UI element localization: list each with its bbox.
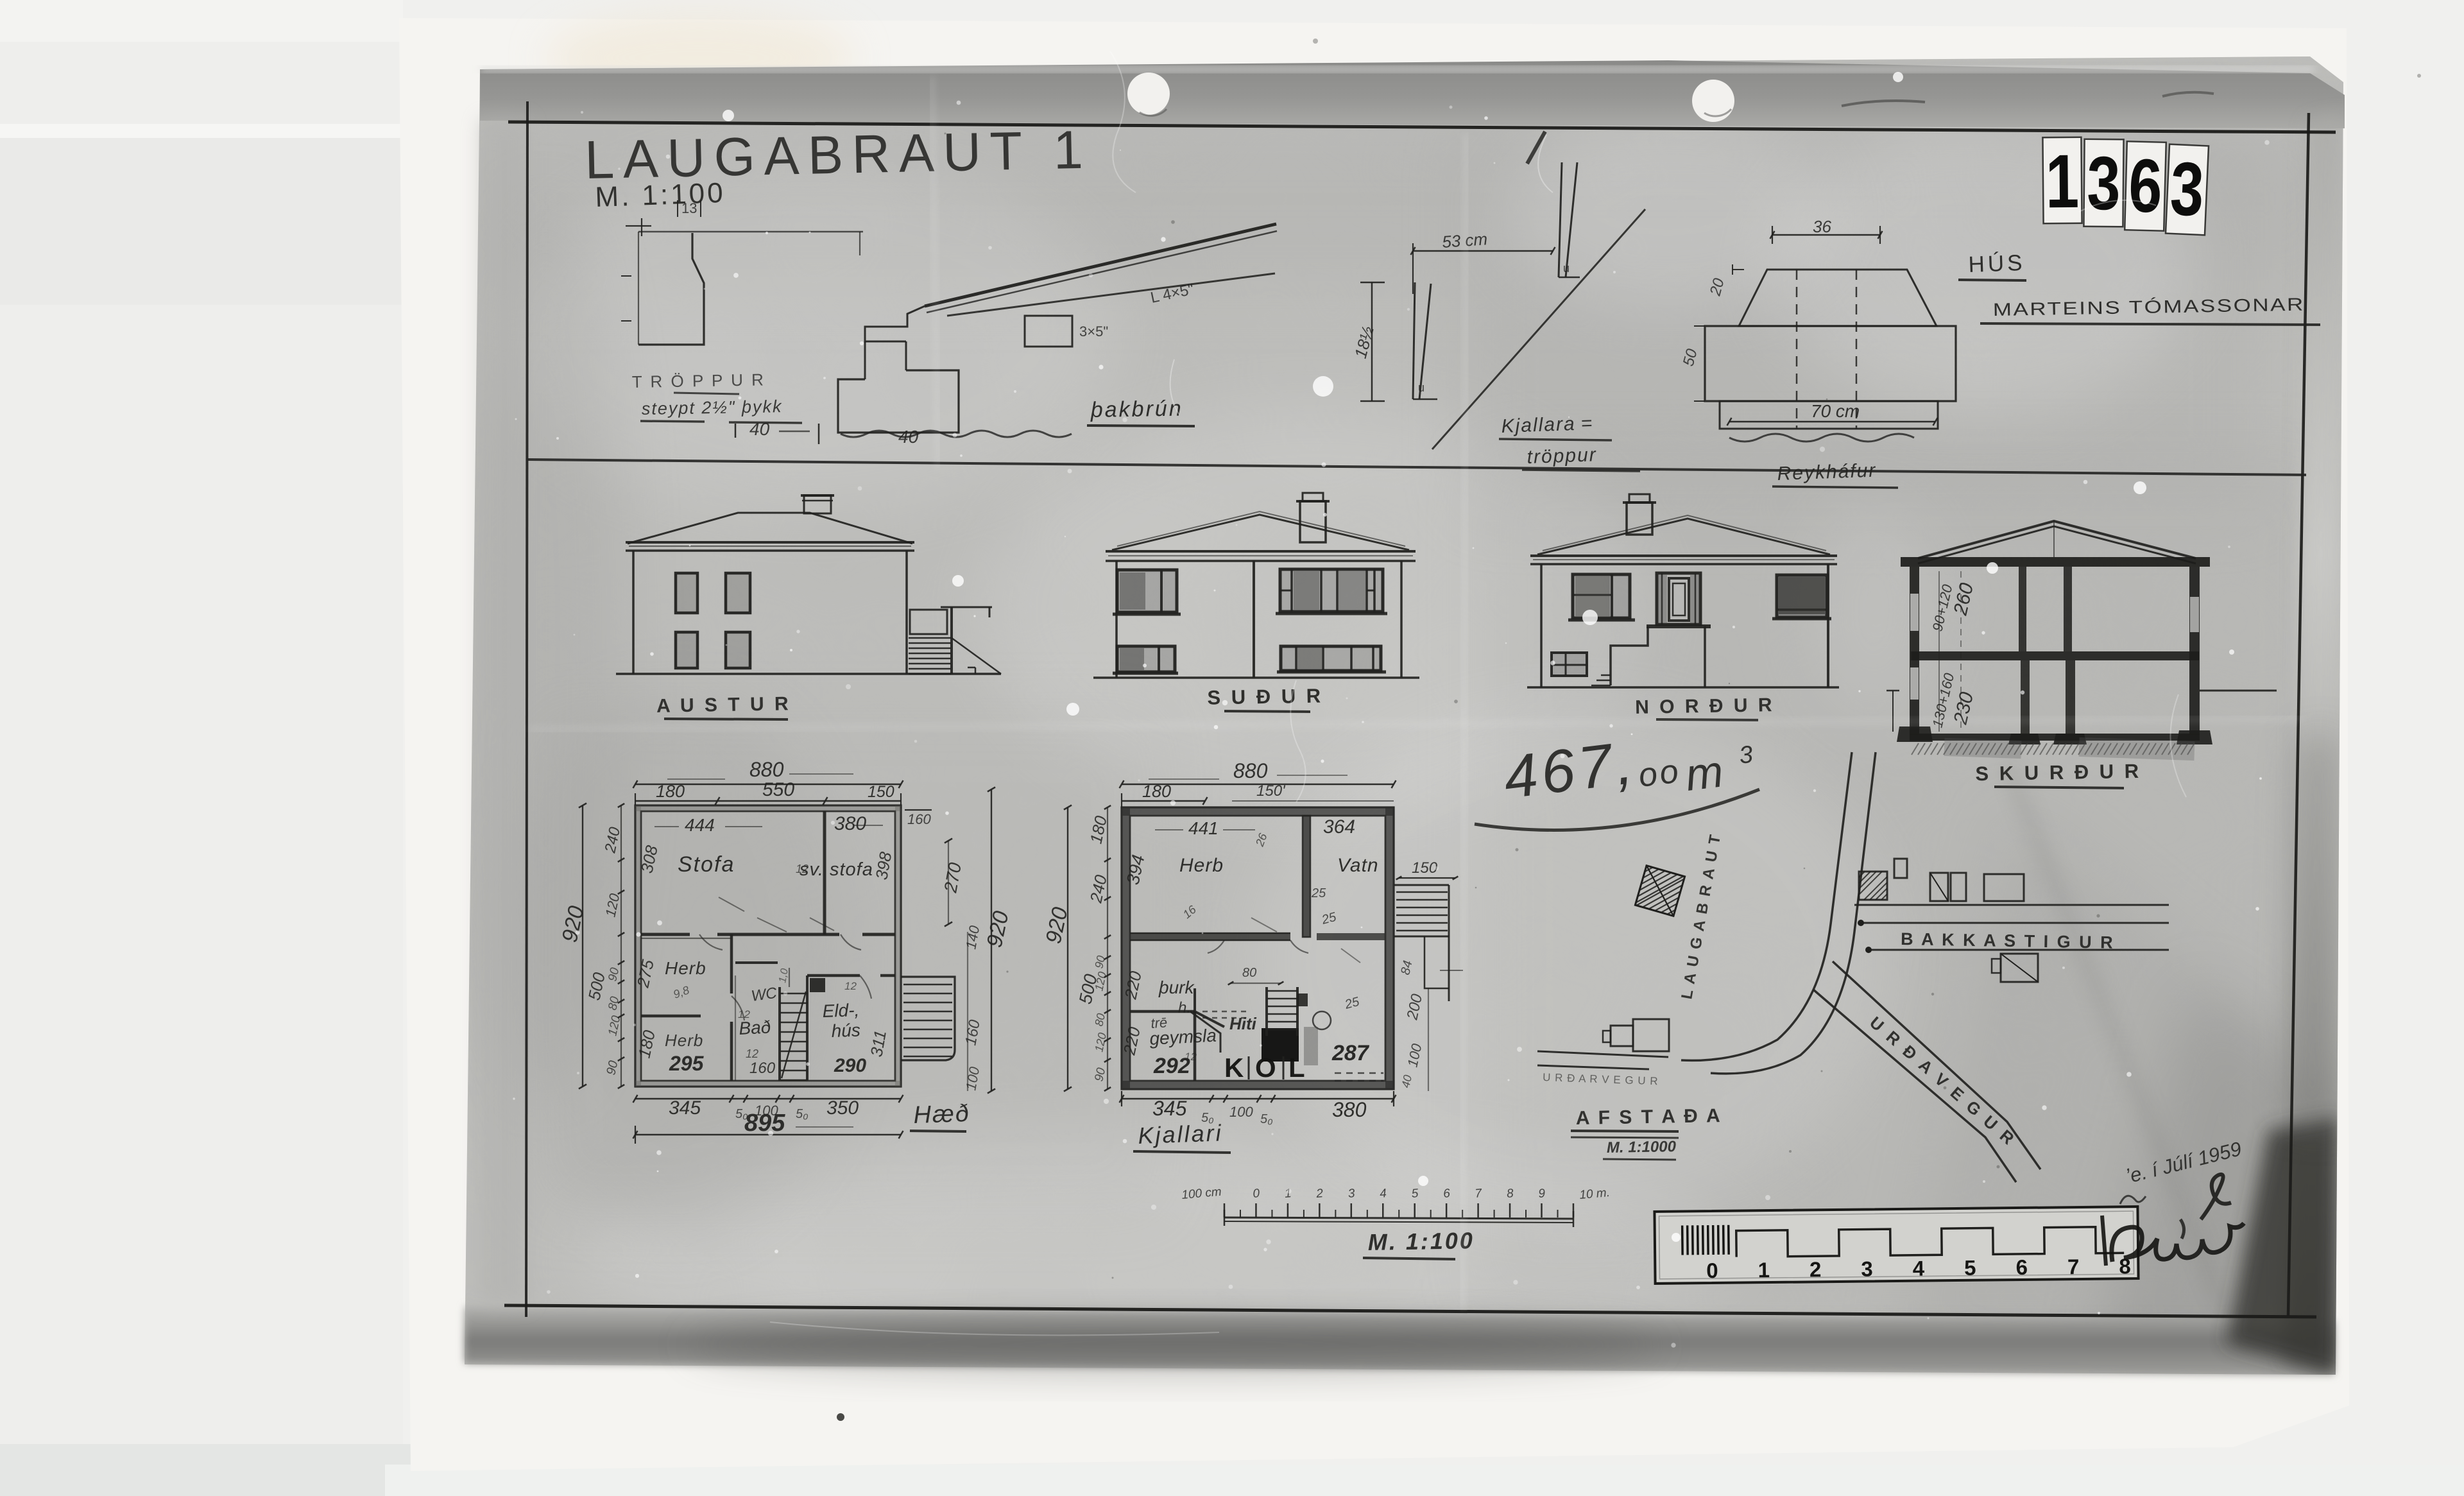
- svg-text:oo: oo: [1636, 752, 1682, 795]
- svg-text:u: u: [1418, 381, 1425, 394]
- svg-text:180: 180: [656, 782, 685, 801]
- svg-text:295: 295: [669, 1052, 705, 1075]
- svg-text:O: O: [1255, 1053, 1276, 1083]
- svg-text:4: 4: [1913, 1257, 1925, 1280]
- svg-text:Hæð: Hæð: [913, 1100, 971, 1129]
- svg-text:Herb: Herb: [1179, 855, 1224, 876]
- svg-text:Bað: Bað: [739, 1017, 771, 1038]
- svg-text:Kjallara =: Kjallara =: [1501, 413, 1594, 437]
- svg-text:Stofa: Stofa: [678, 852, 735, 877]
- svg-text:40: 40: [1399, 1074, 1414, 1089]
- svg-text:K: K: [1224, 1053, 1244, 1083]
- svg-text:180: 180: [1142, 782, 1171, 801]
- svg-text:T R Ö P P U R: T R Ö P P U R: [632, 370, 766, 391]
- svg-text:3: 3: [2169, 146, 2206, 232]
- svg-text:100: 100: [1229, 1104, 1253, 1120]
- svg-text:2: 2: [1315, 1187, 1324, 1201]
- svg-text:160: 160: [749, 1060, 776, 1077]
- svg-text:3×5ʺ: 3×5ʺ: [1079, 323, 1108, 340]
- svg-text:36: 36: [1813, 217, 1831, 236]
- svg-text:345: 345: [1152, 1097, 1187, 1120]
- svg-text:WC: WC: [750, 984, 778, 1005]
- svg-text:Eld-,: Eld-,: [822, 1000, 860, 1021]
- svg-text:6: 6: [2128, 143, 2163, 228]
- svg-text:A F S T A Ð A: A F S T A Ð A: [1576, 1105, 1722, 1129]
- svg-text:7: 7: [2067, 1255, 2080, 1278]
- svg-text:441: 441: [1188, 818, 1219, 838]
- svg-text:2: 2: [1810, 1257, 1822, 1281]
- svg-text:90: 90: [604, 1060, 620, 1076]
- svg-text:1: 1: [2045, 139, 2079, 224]
- svg-text:40: 40: [749, 419, 770, 439]
- svg-text:160: 160: [907, 811, 931, 827]
- svg-text:A U S T U R: A U S T U R: [656, 693, 791, 717]
- svg-text:steypt 2½ʺ þykk: steypt 2½ʺ þykk: [642, 397, 783, 418]
- svg-text:364: 364: [1323, 816, 1355, 838]
- svg-text:13: 13: [681, 200, 697, 216]
- svg-text:12: 12: [796, 863, 809, 875]
- svg-text:290: 290: [834, 1055, 866, 1076]
- svg-text:90: 90: [1092, 954, 1108, 970]
- svg-text:25: 25: [1311, 886, 1326, 900]
- svg-text:150: 150: [1412, 859, 1438, 877]
- svg-text:292: 292: [1153, 1054, 1190, 1078]
- svg-text:tröppur: tröppur: [1527, 444, 1597, 468]
- svg-text:3: 3: [1861, 1257, 1873, 1280]
- svg-text:880: 880: [1233, 759, 1268, 782]
- svg-text:12: 12: [844, 980, 857, 992]
- svg-text:5₀: 5₀: [1260, 1112, 1273, 1126]
- svg-text:0: 0: [1706, 1259, 1718, 1282]
- svg-text:þakbrún: þakbrún: [1090, 396, 1183, 422]
- svg-text:Herb: Herb: [665, 1031, 703, 1050]
- svg-text:h.: h.: [1178, 999, 1191, 1017]
- svg-text:u: u: [1563, 262, 1570, 275]
- svg-text:40: 40: [898, 427, 919, 447]
- svg-text:350: 350: [826, 1097, 859, 1119]
- svg-text:Kjallari: Kjallari: [1138, 1119, 1223, 1149]
- svg-text:80: 80: [1092, 1012, 1108, 1027]
- svg-text:380: 380: [834, 813, 866, 834]
- svg-text:N O R Ð U R: N O R Ð U R: [1635, 694, 1775, 718]
- svg-text:80: 80: [1242, 966, 1256, 980]
- svg-text:10 m.: 10 m.: [1579, 1186, 1611, 1202]
- svg-text:S K U R Ð U R: S K U R Ð U R: [1975, 760, 2141, 786]
- svg-text:150': 150': [1256, 782, 1286, 800]
- svg-text:geymsla: geymsla: [1149, 1026, 1217, 1049]
- svg-text:sv. stofa: sv. stofa: [800, 859, 873, 880]
- svg-text:70 cm: 70 cm: [1811, 401, 1860, 421]
- svg-text:84: 84: [1398, 959, 1415, 976]
- svg-text:287: 287: [1331, 1041, 1370, 1065]
- svg-text:hús: hús: [831, 1020, 860, 1041]
- svg-text:m: m: [1682, 746, 1725, 800]
- svg-text:M. 1:100: M. 1:100: [595, 177, 726, 213]
- svg-text:6: 6: [2015, 1255, 2028, 1279]
- svg-text:880: 880: [749, 758, 784, 781]
- svg-text:4: 4: [1379, 1187, 1387, 1201]
- svg-text:150: 150: [868, 783, 894, 801]
- svg-text:53 cm: 53 cm: [1441, 229, 1488, 252]
- svg-text:Hiti: Hiti: [1229, 1014, 1257, 1033]
- svg-text:5: 5: [1964, 1256, 1976, 1280]
- svg-text:L: L: [1288, 1053, 1305, 1083]
- svg-text:M. 1:100: M. 1:100: [1367, 1227, 1475, 1255]
- svg-text:Reykháfur: Reykháfur: [1777, 460, 1877, 485]
- svg-text:Herb: Herb: [665, 958, 706, 978]
- svg-text:1: 1: [1758, 1258, 1770, 1282]
- svg-text:550: 550: [762, 779, 794, 800]
- svg-text:5₀: 5₀: [796, 1107, 809, 1121]
- svg-text:12: 12: [746, 1047, 758, 1060]
- svg-text:Vatn: Vatn: [1337, 855, 1379, 876]
- svg-text:þurk: þurk: [1158, 977, 1195, 997]
- svg-text:3: 3: [2087, 141, 2121, 226]
- svg-text:444: 444: [685, 815, 715, 835]
- svg-text:HÚS: HÚS: [1968, 250, 2026, 277]
- svg-text:895: 895: [744, 1110, 785, 1137]
- svg-text:380: 380: [1332, 1098, 1367, 1121]
- svg-text:M. 1:1000: M. 1:1000: [1607, 1138, 1677, 1156]
- svg-text:345: 345: [669, 1097, 701, 1119]
- svg-text:1: 1: [1284, 1187, 1292, 1201]
